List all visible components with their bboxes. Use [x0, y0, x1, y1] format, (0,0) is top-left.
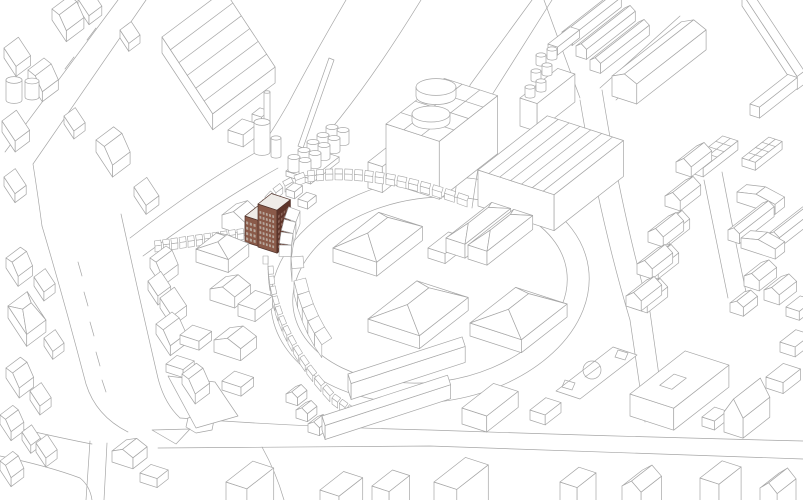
site-drawing — [0, 0, 803, 500]
vent-stack — [547, 47, 557, 51]
vent-stack — [536, 79, 546, 83]
silo — [307, 139, 319, 144]
silo — [298, 147, 310, 152]
storage-tank — [6, 77, 22, 84]
chimney — [264, 91, 270, 94]
silo — [271, 136, 281, 140]
silo — [254, 119, 270, 126]
viaduct-wall — [354, 170, 362, 176]
viaduct-wall — [365, 170, 374, 176]
silo — [317, 132, 329, 137]
viaduct-wall — [237, 229, 244, 235]
viaduct-wall — [345, 169, 353, 174]
vent-stack — [531, 69, 541, 73]
viaduct-wall — [229, 230, 236, 236]
viaduct-wall — [375, 172, 384, 178]
silo — [288, 154, 300, 159]
viaduct-wall — [354, 174, 362, 181]
viaduct-wall — [268, 266, 274, 274]
viaduct-wall — [179, 237, 186, 243]
viaduct-wall — [171, 238, 178, 244]
silo — [309, 150, 321, 155]
viaduct-wall — [163, 239, 170, 245]
crescent-terrace — [280, 232, 294, 245]
silo — [337, 127, 349, 132]
viaduct-wall — [263, 256, 268, 264]
silo — [318, 142, 330, 147]
viaduct-wall — [269, 276, 275, 285]
viaduct-wall — [335, 169, 342, 174]
axonometric-site-plan — [0, 0, 803, 500]
silo — [328, 135, 340, 140]
crescent-terrace — [279, 245, 291, 257]
viaduct-wall — [326, 174, 333, 180]
silo — [254, 122, 270, 155]
silo — [326, 124, 338, 129]
viaduct-wall — [154, 240, 161, 246]
storage-tank — [25, 78, 39, 84]
crescent-terrace — [291, 256, 304, 269]
viaduct-wall — [345, 174, 353, 180]
viaduct-wall — [317, 174, 324, 181]
silo — [299, 157, 311, 162]
vent-stack — [525, 85, 535, 89]
viaduct-wall — [316, 169, 323, 175]
viaduct-wall — [307, 170, 314, 176]
gas-holder-tank — [416, 79, 456, 96]
gas-holder-tank — [412, 106, 450, 122]
viaduct-wall — [196, 234, 203, 240]
viaduct-wall — [326, 169, 333, 174]
viaduct-wall — [335, 174, 342, 180]
silo — [271, 138, 281, 158]
viaduct-wall — [187, 236, 194, 242]
vent-stack — [536, 53, 546, 57]
vent-stack — [542, 63, 552, 67]
